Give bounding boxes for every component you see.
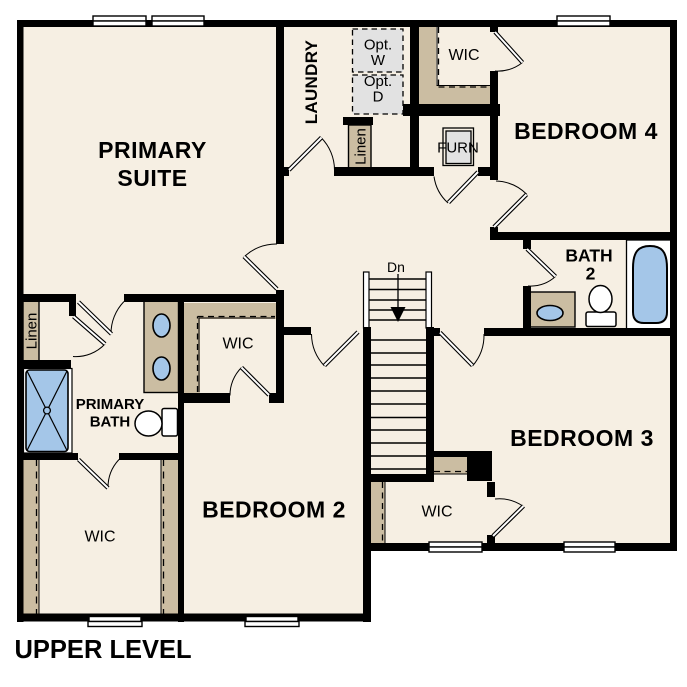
svg-text:UPPER LEVEL: UPPER LEVEL xyxy=(15,636,192,664)
svg-text:WIC: WIC xyxy=(84,529,115,546)
svg-text:WIC: WIC xyxy=(448,47,479,64)
svg-text:Linen: Linen xyxy=(353,128,370,165)
svg-text:PRIMARY: PRIMARY xyxy=(98,137,207,163)
svg-text:BATH: BATH xyxy=(565,246,612,266)
svg-text:D: D xyxy=(373,89,384,106)
svg-text:BEDROOM 2: BEDROOM 2 xyxy=(202,497,346,523)
svg-text:BATH: BATH xyxy=(90,414,131,431)
svg-text:2: 2 xyxy=(586,264,596,284)
svg-text:LAUNDRY: LAUNDRY xyxy=(302,39,321,124)
svg-text:BEDROOM 3: BEDROOM 3 xyxy=(510,425,654,451)
svg-text:Dn: Dn xyxy=(387,259,405,275)
svg-text:SUITE: SUITE xyxy=(117,165,187,191)
svg-text:Linen: Linen xyxy=(24,313,41,350)
svg-text:PRIMARY: PRIMARY xyxy=(76,396,145,413)
svg-text:FURN: FURN xyxy=(437,140,479,157)
svg-text:WIC: WIC xyxy=(222,336,253,353)
svg-text:Opt.: Opt. xyxy=(364,73,392,90)
svg-text:BEDROOM 4: BEDROOM 4 xyxy=(514,118,658,144)
svg-text:Opt.: Opt. xyxy=(364,37,392,54)
svg-text:WIC: WIC xyxy=(421,504,452,521)
svg-text:W: W xyxy=(371,52,386,69)
